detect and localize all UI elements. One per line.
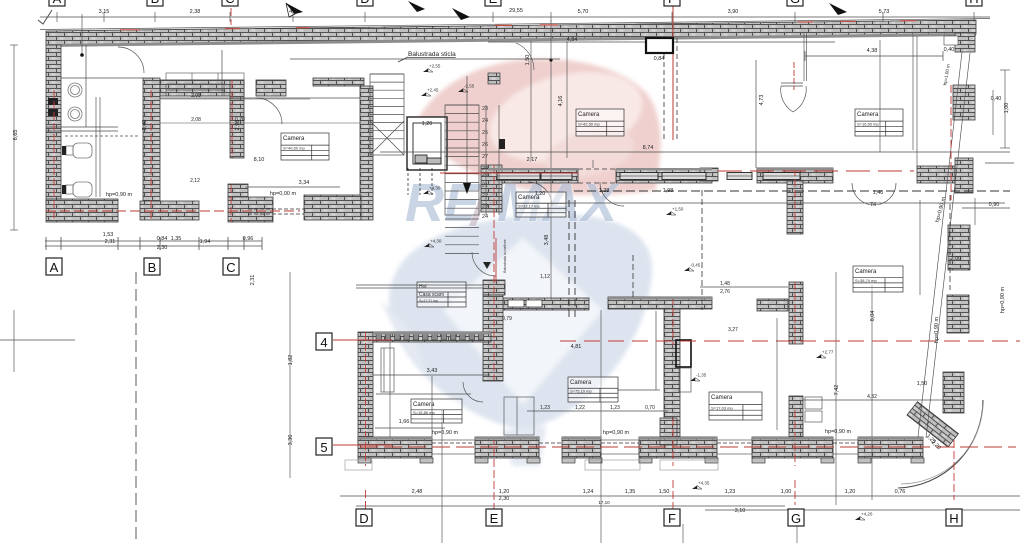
svg-text:2,48: 2,48 bbox=[412, 489, 423, 495]
svg-text:F: F bbox=[668, 511, 676, 526]
svg-text:S=75,10 mp: S=75,10 mp bbox=[570, 389, 592, 394]
svg-text:1,23: 1,23 bbox=[540, 405, 550, 411]
svg-text:23: 23 bbox=[482, 204, 488, 210]
svg-text:8,04: 8,04 bbox=[870, 311, 876, 322]
svg-text:1,00: 1,00 bbox=[781, 489, 792, 495]
svg-text:A: A bbox=[50, 260, 59, 275]
svg-text:2,00: 2,00 bbox=[951, 256, 962, 262]
svg-text:S=42,50 mp: S=42,50 mp bbox=[578, 122, 600, 127]
svg-text:5: 5 bbox=[320, 440, 327, 455]
svg-text:2,31: 2,31 bbox=[250, 275, 256, 286]
svg-text:5,70: 5,70 bbox=[578, 9, 589, 15]
svg-text:Camera: Camera bbox=[857, 112, 879, 118]
svg-text:2,31: 2,31 bbox=[105, 239, 116, 245]
svg-text:26: 26 bbox=[482, 142, 488, 148]
svg-text:24: 24 bbox=[482, 214, 488, 220]
svg-text:5,73: 5,73 bbox=[879, 9, 890, 15]
svg-text:4,84: 4,84 bbox=[567, 37, 578, 43]
svg-text:+4,30: +4,30 bbox=[429, 186, 441, 191]
svg-text:29,55: 29,55 bbox=[509, 8, 523, 14]
svg-text:S=38,74 mp: S=38,74 mp bbox=[855, 278, 877, 283]
svg-text:-0,45: -0,45 bbox=[690, 263, 701, 268]
svg-text:0,96: 0,96 bbox=[243, 236, 254, 242]
svg-text:2,08: 2,08 bbox=[191, 93, 201, 99]
svg-text:2,30: 2,30 bbox=[499, 496, 510, 502]
svg-text:1,82: 1,82 bbox=[288, 355, 294, 366]
svg-text:hp=0,90 m: hp=0,90 m bbox=[603, 430, 630, 436]
svg-text:hp=0,90 m: hp=0,90 m bbox=[432, 430, 459, 436]
svg-text:2,30: 2,30 bbox=[157, 245, 168, 251]
svg-text:4,2: 4,2 bbox=[289, 9, 297, 15]
svg-text:1,94: 1,94 bbox=[200, 239, 211, 245]
svg-text:1,00: 1,00 bbox=[1004, 103, 1010, 114]
svg-text:7,42: 7,42 bbox=[834, 385, 840, 396]
svg-text:B: B bbox=[148, 260, 157, 275]
svg-text:Camera: Camera bbox=[855, 269, 877, 275]
svg-text:Camera: Camera bbox=[711, 395, 733, 401]
svg-text:1,50: 1,50 bbox=[525, 55, 531, 66]
svg-text:4: 4 bbox=[320, 335, 327, 350]
svg-text:+2,45: +2,45 bbox=[427, 88, 439, 93]
svg-text:+1,50: +1,50 bbox=[672, 207, 684, 212]
svg-text:4,81: 4,81 bbox=[571, 344, 582, 350]
svg-text:H: H bbox=[949, 511, 958, 526]
svg-text:0,40: 0,40 bbox=[944, 47, 955, 53]
svg-text:1,20: 1,20 bbox=[499, 489, 510, 495]
svg-text:C: C bbox=[225, 0, 234, 6]
svg-text:hp=0,90 m: hp=0,90 m bbox=[1000, 287, 1006, 314]
svg-text:4,73: 4,73 bbox=[759, 95, 765, 106]
svg-text:1,48: 1,48 bbox=[720, 281, 730, 287]
svg-text:1,23: 1,23 bbox=[610, 405, 620, 411]
svg-text:D: D bbox=[360, 0, 369, 6]
svg-text:S=17,21 mp: S=17,21 mp bbox=[419, 299, 438, 303]
svg-text:21: 21 bbox=[482, 183, 488, 189]
svg-text:G: G bbox=[790, 0, 800, 6]
svg-text:3,34: 3,34 bbox=[299, 180, 310, 186]
svg-text:24: 24 bbox=[482, 118, 488, 124]
svg-text:8,10: 8,10 bbox=[254, 157, 265, 163]
svg-text:3,48: 3,48 bbox=[544, 235, 550, 246]
svg-text:-1,35: -1,35 bbox=[696, 373, 707, 378]
svg-text:2,17: 2,17 bbox=[527, 157, 538, 163]
svg-text:+4,20: +4,20 bbox=[861, 512, 873, 517]
svg-text:1,12: 1,12 bbox=[540, 274, 550, 280]
svg-text:Balustrada sticla: Balustrada sticla bbox=[408, 51, 456, 58]
svg-text:4,38: 4,38 bbox=[867, 48, 878, 54]
svg-text:hp=0,90 m: hp=0,90 m bbox=[934, 317, 940, 344]
svg-text:S=16,50 mp: S=16,50 mp bbox=[857, 122, 879, 127]
svg-text:Camera: Camera bbox=[283, 136, 305, 142]
svg-text:D: D bbox=[359, 511, 368, 526]
svg-text:2,12: 2,12 bbox=[190, 178, 200, 184]
svg-text:74: 74 bbox=[870, 202, 876, 208]
svg-text:0,78: 0,78 bbox=[235, 117, 245, 123]
svg-text:3,15: 3,15 bbox=[99, 9, 110, 15]
svg-text:1,24: 1,24 bbox=[583, 489, 594, 495]
svg-text:0,40: 0,40 bbox=[991, 96, 1002, 102]
svg-text:+2,77: +2,77 bbox=[822, 350, 834, 355]
svg-text:F: F bbox=[668, 0, 676, 6]
svg-text:0,90: 0,90 bbox=[989, 202, 1000, 208]
svg-text:1,98: 1,98 bbox=[663, 188, 674, 194]
svg-text:Camera: Camera bbox=[570, 380, 592, 386]
svg-text:E: E bbox=[489, 0, 498, 6]
svg-text:1,20: 1,20 bbox=[535, 191, 546, 197]
svg-text:1,40: 1,40 bbox=[873, 190, 884, 196]
svg-text:0,76: 0,76 bbox=[895, 489, 906, 495]
svg-text:B: B bbox=[151, 0, 160, 6]
svg-text:27: 27 bbox=[482, 154, 488, 160]
svg-text:E: E bbox=[490, 511, 499, 526]
svg-text:2,38: 2,38 bbox=[190, 9, 201, 15]
svg-text:17,10: 17,10 bbox=[598, 500, 610, 505]
svg-text:0,79: 0,79 bbox=[502, 316, 512, 322]
svg-text:S=40,00 mp: S=40,00 mp bbox=[283, 146, 305, 151]
svg-text:8,74: 8,74 bbox=[643, 145, 654, 151]
svg-text:22: 22 bbox=[482, 193, 488, 199]
svg-text:25: 25 bbox=[482, 130, 488, 136]
svg-text:hp=0,90 m: hp=0,90 m bbox=[825, 429, 852, 435]
svg-text:1,20: 1,20 bbox=[422, 121, 433, 127]
svg-text:+4,30: +4,30 bbox=[430, 239, 442, 244]
svg-text:23: 23 bbox=[482, 106, 488, 112]
svg-text:3,40: 3,40 bbox=[142, 120, 148, 131]
svg-text:3,27: 3,27 bbox=[728, 327, 738, 333]
svg-text:+4,35: +4,35 bbox=[698, 481, 710, 486]
svg-text:hp=0,00 m: hp=0,00 m bbox=[270, 191, 297, 197]
svg-text:Balustrada la inaltime: Balustrada la inaltime bbox=[503, 239, 507, 273]
svg-text:G: G bbox=[791, 511, 801, 526]
svg-text:1,35: 1,35 bbox=[171, 236, 182, 242]
svg-text:A: A bbox=[53, 0, 62, 6]
svg-text:3,43: 3,43 bbox=[427, 368, 438, 374]
svg-text:1,50: 1,50 bbox=[917, 381, 928, 387]
svg-text:1,66: 1,66 bbox=[399, 419, 410, 425]
svg-text:S=33,17 mp: S=33,17 mp bbox=[518, 204, 540, 209]
svg-text:H: H bbox=[969, 0, 978, 6]
svg-text:1,20: 1,20 bbox=[845, 489, 856, 495]
svg-text:Camera: Camera bbox=[578, 112, 600, 118]
svg-text:1,28: 1,28 bbox=[599, 188, 610, 194]
svg-text:-2,55: -2,55 bbox=[464, 84, 475, 89]
svg-text:3,10: 3,10 bbox=[735, 508, 746, 514]
svg-text:1,35: 1,35 bbox=[625, 489, 636, 495]
svg-text:3,90: 3,90 bbox=[728, 9, 739, 15]
svg-text:C: C bbox=[226, 260, 235, 275]
svg-text:1,50: 1,50 bbox=[659, 489, 670, 495]
svg-text:0,84: 0,84 bbox=[654, 56, 665, 62]
svg-text:+2,55: +2,55 bbox=[429, 64, 441, 69]
svg-text:4,32: 4,32 bbox=[867, 394, 877, 400]
svg-text:Casa scarii: Casa scarii bbox=[419, 292, 444, 298]
svg-text:1,23: 1,23 bbox=[725, 489, 736, 495]
svg-text:hp=0,90 m: hp=0,90 m bbox=[106, 192, 133, 198]
svg-text:0,70: 0,70 bbox=[645, 405, 655, 411]
svg-text:S=17,03 mp: S=17,03 mp bbox=[711, 405, 733, 410]
svg-text:2,76: 2,76 bbox=[720, 289, 730, 295]
svg-text:4,16: 4,16 bbox=[558, 96, 564, 107]
svg-text:6,65: 6,65 bbox=[13, 130, 19, 141]
svg-text:2,08: 2,08 bbox=[191, 117, 201, 123]
svg-text:3,36: 3,36 bbox=[288, 435, 294, 446]
svg-text:1,53: 1,53 bbox=[103, 232, 114, 238]
svg-text:1,22: 1,22 bbox=[575, 405, 585, 411]
svg-text:0,84: 0,84 bbox=[157, 236, 168, 242]
